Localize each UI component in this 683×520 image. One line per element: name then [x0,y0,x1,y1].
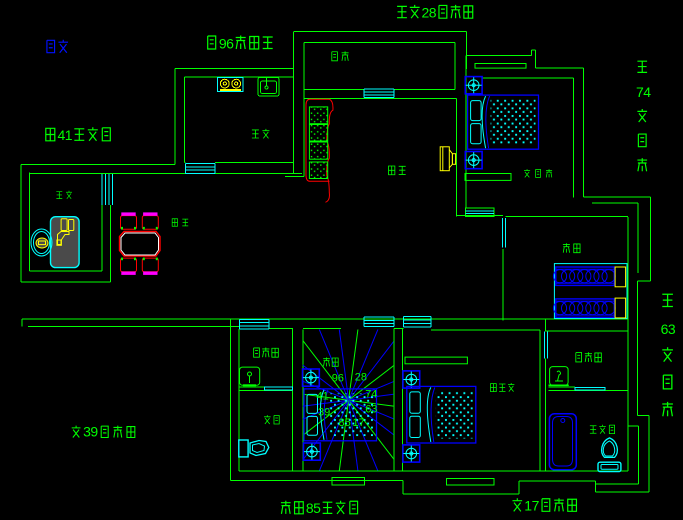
svg-text:28: 28 [422,5,437,21]
svg-text:39: 39 [318,407,330,419]
svg-text:85: 85 [339,417,351,429]
svg-text:17: 17 [524,498,539,514]
svg-text:63: 63 [365,404,377,416]
svg-text:41: 41 [58,127,73,143]
svg-text:74: 74 [636,84,651,100]
svg-text:63: 63 [661,321,676,337]
svg-text:85: 85 [306,500,321,516]
svg-text:41: 41 [317,391,329,403]
svg-text:96: 96 [332,373,344,385]
svg-text:17: 17 [353,417,365,429]
svg-text:74: 74 [365,389,377,401]
svg-text:96: 96 [219,35,234,51]
svg-text:28: 28 [355,372,367,384]
svg-text:39: 39 [83,424,98,440]
